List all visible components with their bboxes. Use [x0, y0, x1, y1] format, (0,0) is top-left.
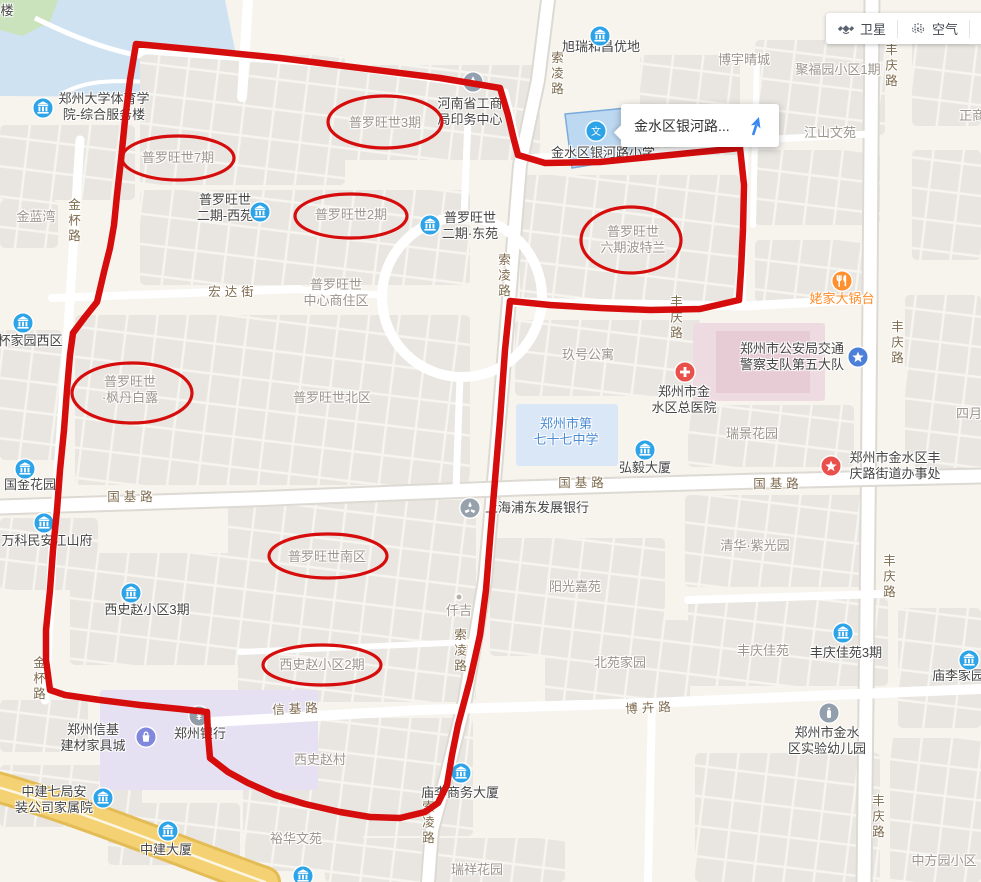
bldg-poi-icon[interactable] — [832, 622, 854, 644]
svg-text:文: 文 — [591, 125, 601, 138]
air-label: 空气 — [932, 19, 958, 38]
bldg-poi-icon[interactable] — [292, 865, 314, 882]
police-poi-icon[interactable] — [847, 346, 869, 368]
bldg-poi-icon[interactable] — [634, 439, 656, 461]
bldg-poi-icon[interactable] — [120, 582, 142, 604]
air-quality-icon — [909, 20, 927, 38]
bldg-poi-icon[interactable] — [589, 25, 611, 47]
svg-text:¥: ¥ — [196, 711, 203, 723]
bank2-poi-icon[interactable] — [459, 497, 481, 519]
bldg-poi-icon[interactable] — [14, 458, 36, 480]
popup-title: 金水区银河路... — [621, 116, 743, 136]
bldg-poi-icon[interactable] — [92, 787, 114, 809]
divider — [969, 20, 970, 38]
dot-poi-icon[interactable] — [454, 592, 464, 602]
satellite-icon — [837, 20, 855, 38]
bldg-poi-icon[interactable] — [450, 762, 472, 784]
bldg-poi-icon[interactable] — [958, 649, 980, 671]
food-poi-icon[interactable] — [831, 270, 853, 292]
bank-poi-icon[interactable]: ¥ — [188, 705, 210, 727]
school-poi-icon[interactable]: 文 — [585, 120, 607, 142]
kid-poi-icon[interactable] — [818, 702, 840, 724]
bldg-poi-icon[interactable] — [32, 97, 54, 119]
bldg-poi-icon[interactable] — [249, 201, 271, 223]
air-button[interactable]: 空气 — [898, 13, 969, 44]
route-arrow-icon — [743, 113, 769, 139]
print-poi-icon[interactable] — [462, 71, 484, 93]
satellite-button[interactable]: 卫星 — [826, 13, 897, 44]
map-pois: 文¥ — [0, 0, 981, 882]
hosp-poi-icon[interactable] — [674, 361, 696, 383]
mall-poi-icon[interactable] — [135, 726, 157, 748]
map-controls: 卫星 空气 — [826, 13, 981, 44]
map-canvas[interactable]: 楼郑州大学体育学院-综合服务楼旭瑞和昌优地博宇晴城聚福园小区1期江山文苑正商河南… — [0, 0, 981, 882]
satellite-label: 卫星 — [860, 19, 886, 38]
bldg-poi-icon[interactable] — [33, 512, 55, 534]
bldg-poi-icon[interactable] — [157, 820, 179, 842]
bldg-poi-icon[interactable] — [419, 214, 441, 236]
poi-popup[interactable]: 金水区银河路... — [621, 104, 779, 147]
bldg-poi-icon[interactable] — [12, 312, 34, 334]
gov-poi-icon[interactable] — [820, 455, 842, 477]
route-button[interactable] — [743, 113, 769, 139]
